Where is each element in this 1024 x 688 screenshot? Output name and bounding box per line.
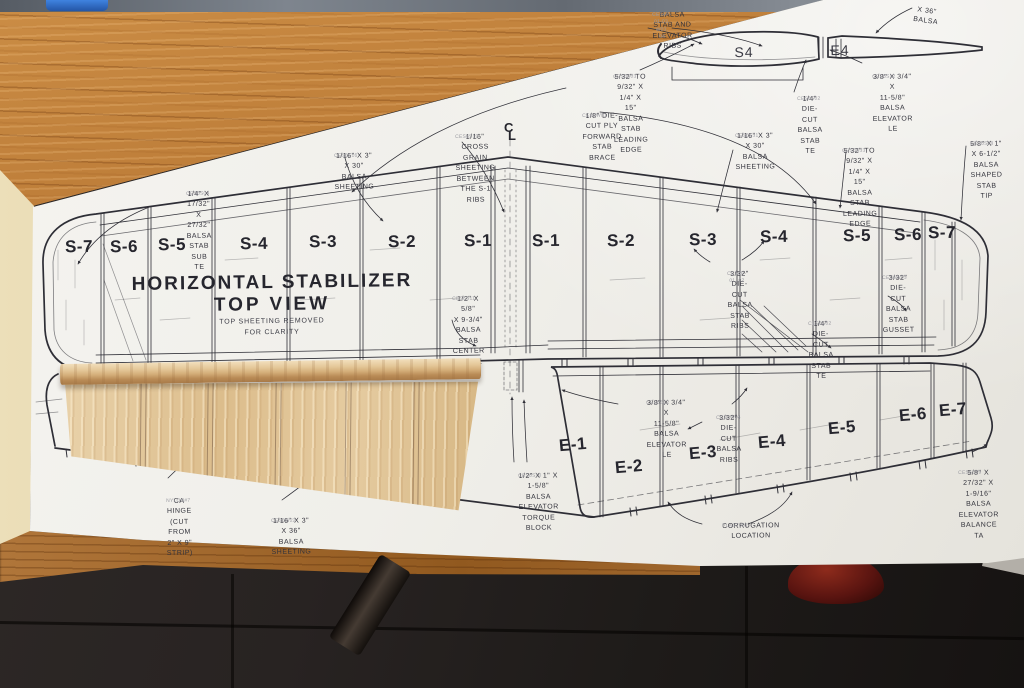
plan-linework (0, 0, 1024, 688)
stab-section-label: S-4 (240, 234, 268, 254)
title-note: TOP SHEETING REMOVED FOR CLARITY (219, 316, 324, 338)
stab-section-label: S-3 (689, 230, 717, 250)
stab-section-label: S-3 (309, 232, 337, 252)
elevator-section-label: E-2 (614, 456, 644, 478)
elevator-section-label: E-3 (688, 442, 718, 464)
stab-section-label: S-6 (894, 225, 922, 245)
stab-section-label: S-2 (607, 231, 635, 251)
stab-section-label: S-1 (532, 231, 560, 251)
centerline-l: L (508, 128, 516, 143)
stab-section-label: S-4 (760, 227, 788, 247)
stab-section-label: S-1 (464, 231, 492, 251)
stab-section-label: S-5 (158, 235, 186, 255)
photo-scene: HORIZONTAL STABILIZER TOP VIEW TOP SHEET… (0, 0, 1024, 688)
pencil-line (412, 374, 419, 516)
stab-section-label: S-2 (388, 232, 416, 252)
sideview-elevator-label: E4 (830, 42, 849, 58)
stab-section-label: S-7 (928, 223, 956, 243)
elevator-section-label: E-1 (558, 434, 588, 456)
page-title: HORIZONTAL STABILIZER (132, 270, 413, 296)
stab-section-label: S-6 (110, 237, 138, 257)
elevator-section-label: E-5 (827, 417, 857, 439)
elevator-section-label: E-7 (938, 399, 968, 421)
sideview-stab-label: S4 (734, 44, 753, 60)
page-subtitle: TOP VIEW (214, 293, 331, 317)
stab-section-label: S-7 (65, 237, 93, 257)
elevator-section-label: E-6 (898, 404, 928, 426)
centerline-symbol: C L (504, 120, 520, 144)
elevator-section-label: E-4 (757, 431, 787, 453)
